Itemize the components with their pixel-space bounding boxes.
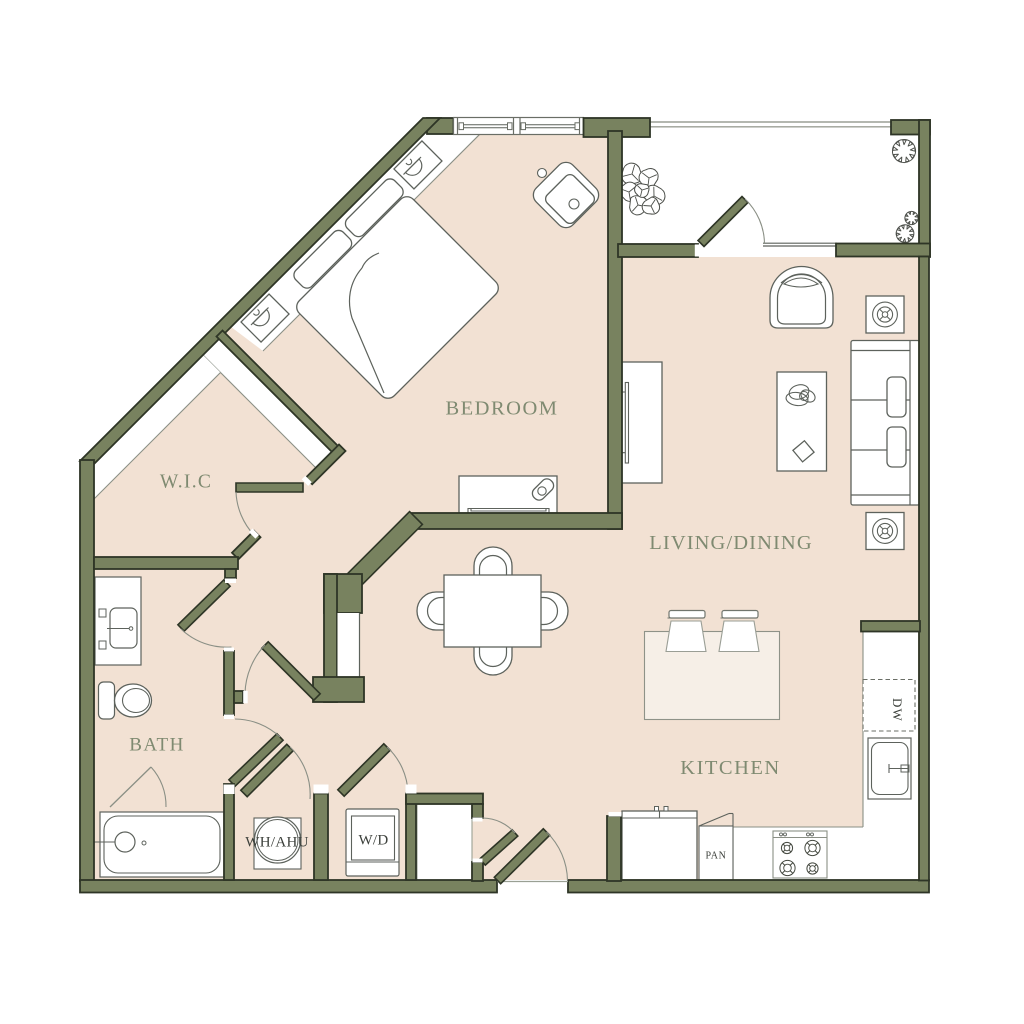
svg-text:LIVING/DINING: LIVING/DINING <box>649 532 812 554</box>
svg-text:DW: DW <box>890 698 905 722</box>
svg-text:W.I.C: W.I.C <box>160 472 212 493</box>
svg-text:BATH: BATH <box>129 735 185 756</box>
svg-text:W/D: W/D <box>358 833 388 849</box>
svg-text:PAN: PAN <box>706 851 727 862</box>
svg-text:KITCHEN: KITCHEN <box>680 757 780 779</box>
svg-text:BEDROOM: BEDROOM <box>445 398 558 420</box>
svg-text:WH/AHU: WH/AHU <box>245 835 308 851</box>
